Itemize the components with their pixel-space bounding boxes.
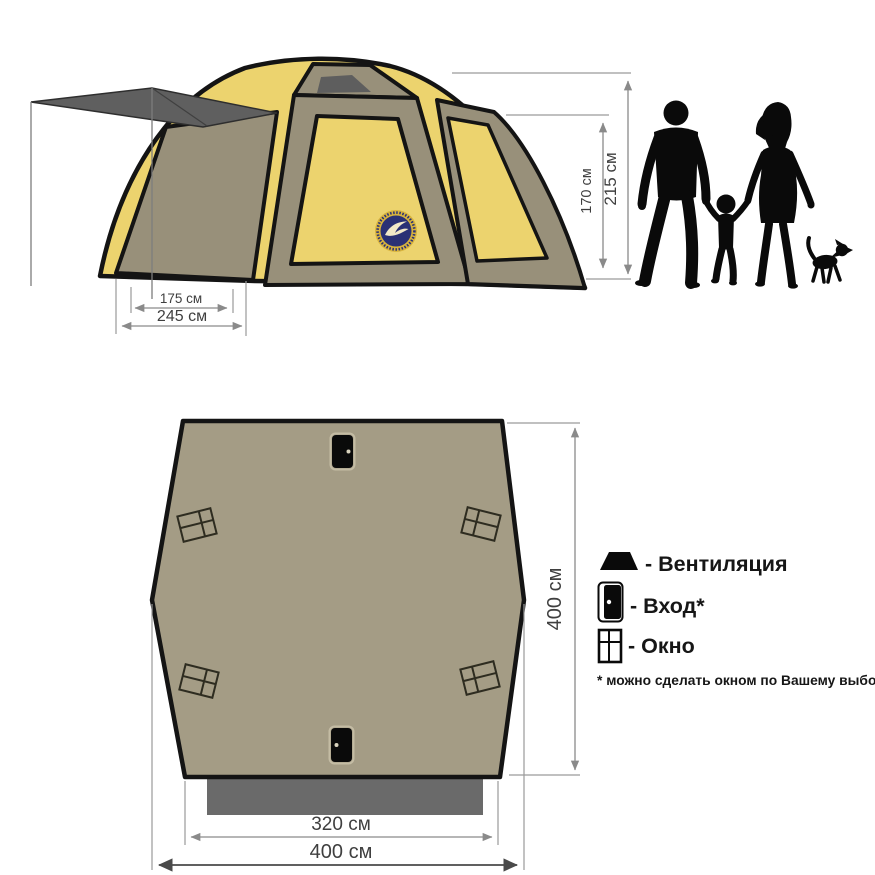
dim-plan-depth: 400 см	[544, 568, 566, 631]
floor-plan-outline	[152, 421, 524, 777]
awning-footprint	[207, 779, 483, 815]
diagram-canvas: 170 см 215 см 175 см 245 см	[0, 0, 875, 875]
child-silhouette-icon	[705, 195, 748, 286]
dim-entrance-width: 320 см	[311, 814, 371, 835]
legend-note: * можно сделать окном по Вашему выбору	[597, 673, 875, 688]
legend-window-label: - Окно	[628, 634, 695, 658]
tent-top-view: 400 см 320 см 400 см	[152, 421, 580, 870]
dim-width-inner: 175 см	[160, 291, 202, 306]
door-bottom-icon	[330, 727, 354, 764]
side-width-dimensions: 175 см 245 см	[116, 279, 246, 336]
vent-icon	[600, 552, 638, 570]
legend: - Вентиляция - Вход* - Окно * можно сдел…	[597, 552, 875, 688]
dim-width-outer: 245 см	[157, 308, 207, 325]
tent-side-view: 170 см 215 см 175 см 245 см	[31, 59, 853, 336]
legend-vent-label: - Вентиляция	[645, 552, 788, 576]
family-silhouette	[635, 101, 853, 289]
man-silhouette-icon	[635, 101, 710, 289]
dim-height-outer: 215 см	[601, 152, 620, 205]
brand-badge-icon	[375, 210, 417, 252]
legend-door-label: - Вход*	[630, 594, 705, 618]
door-icon	[599, 583, 623, 622]
woman-silhouette-icon	[745, 102, 815, 289]
dog-silhouette-icon	[808, 238, 853, 282]
window-icon	[599, 630, 621, 662]
dim-height-inner: 170 см	[579, 168, 595, 213]
tent-spec-diagram: 170 см 215 см 175 см 245 см	[0, 0, 875, 875]
dim-plan-width: 400 см	[310, 841, 373, 863]
door-top-icon	[331, 434, 355, 470]
